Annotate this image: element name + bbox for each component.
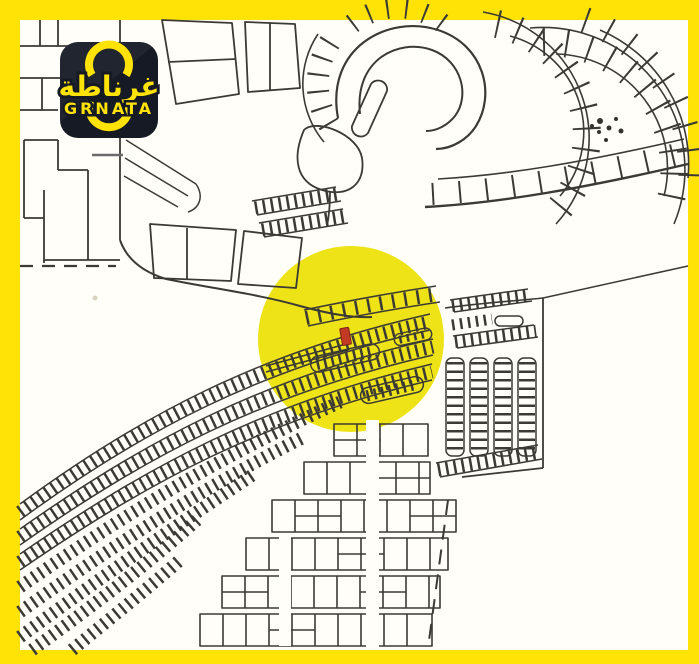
map-canvas: غرناطة GRNATA xyxy=(0,0,699,664)
grnata-logo: غرناطة GRNATA xyxy=(59,42,160,138)
scan-smudge xyxy=(93,296,98,301)
map-screenshot: غرناطة GRNATA xyxy=(0,0,699,664)
logo-latin-text: GRNATA xyxy=(64,99,154,118)
